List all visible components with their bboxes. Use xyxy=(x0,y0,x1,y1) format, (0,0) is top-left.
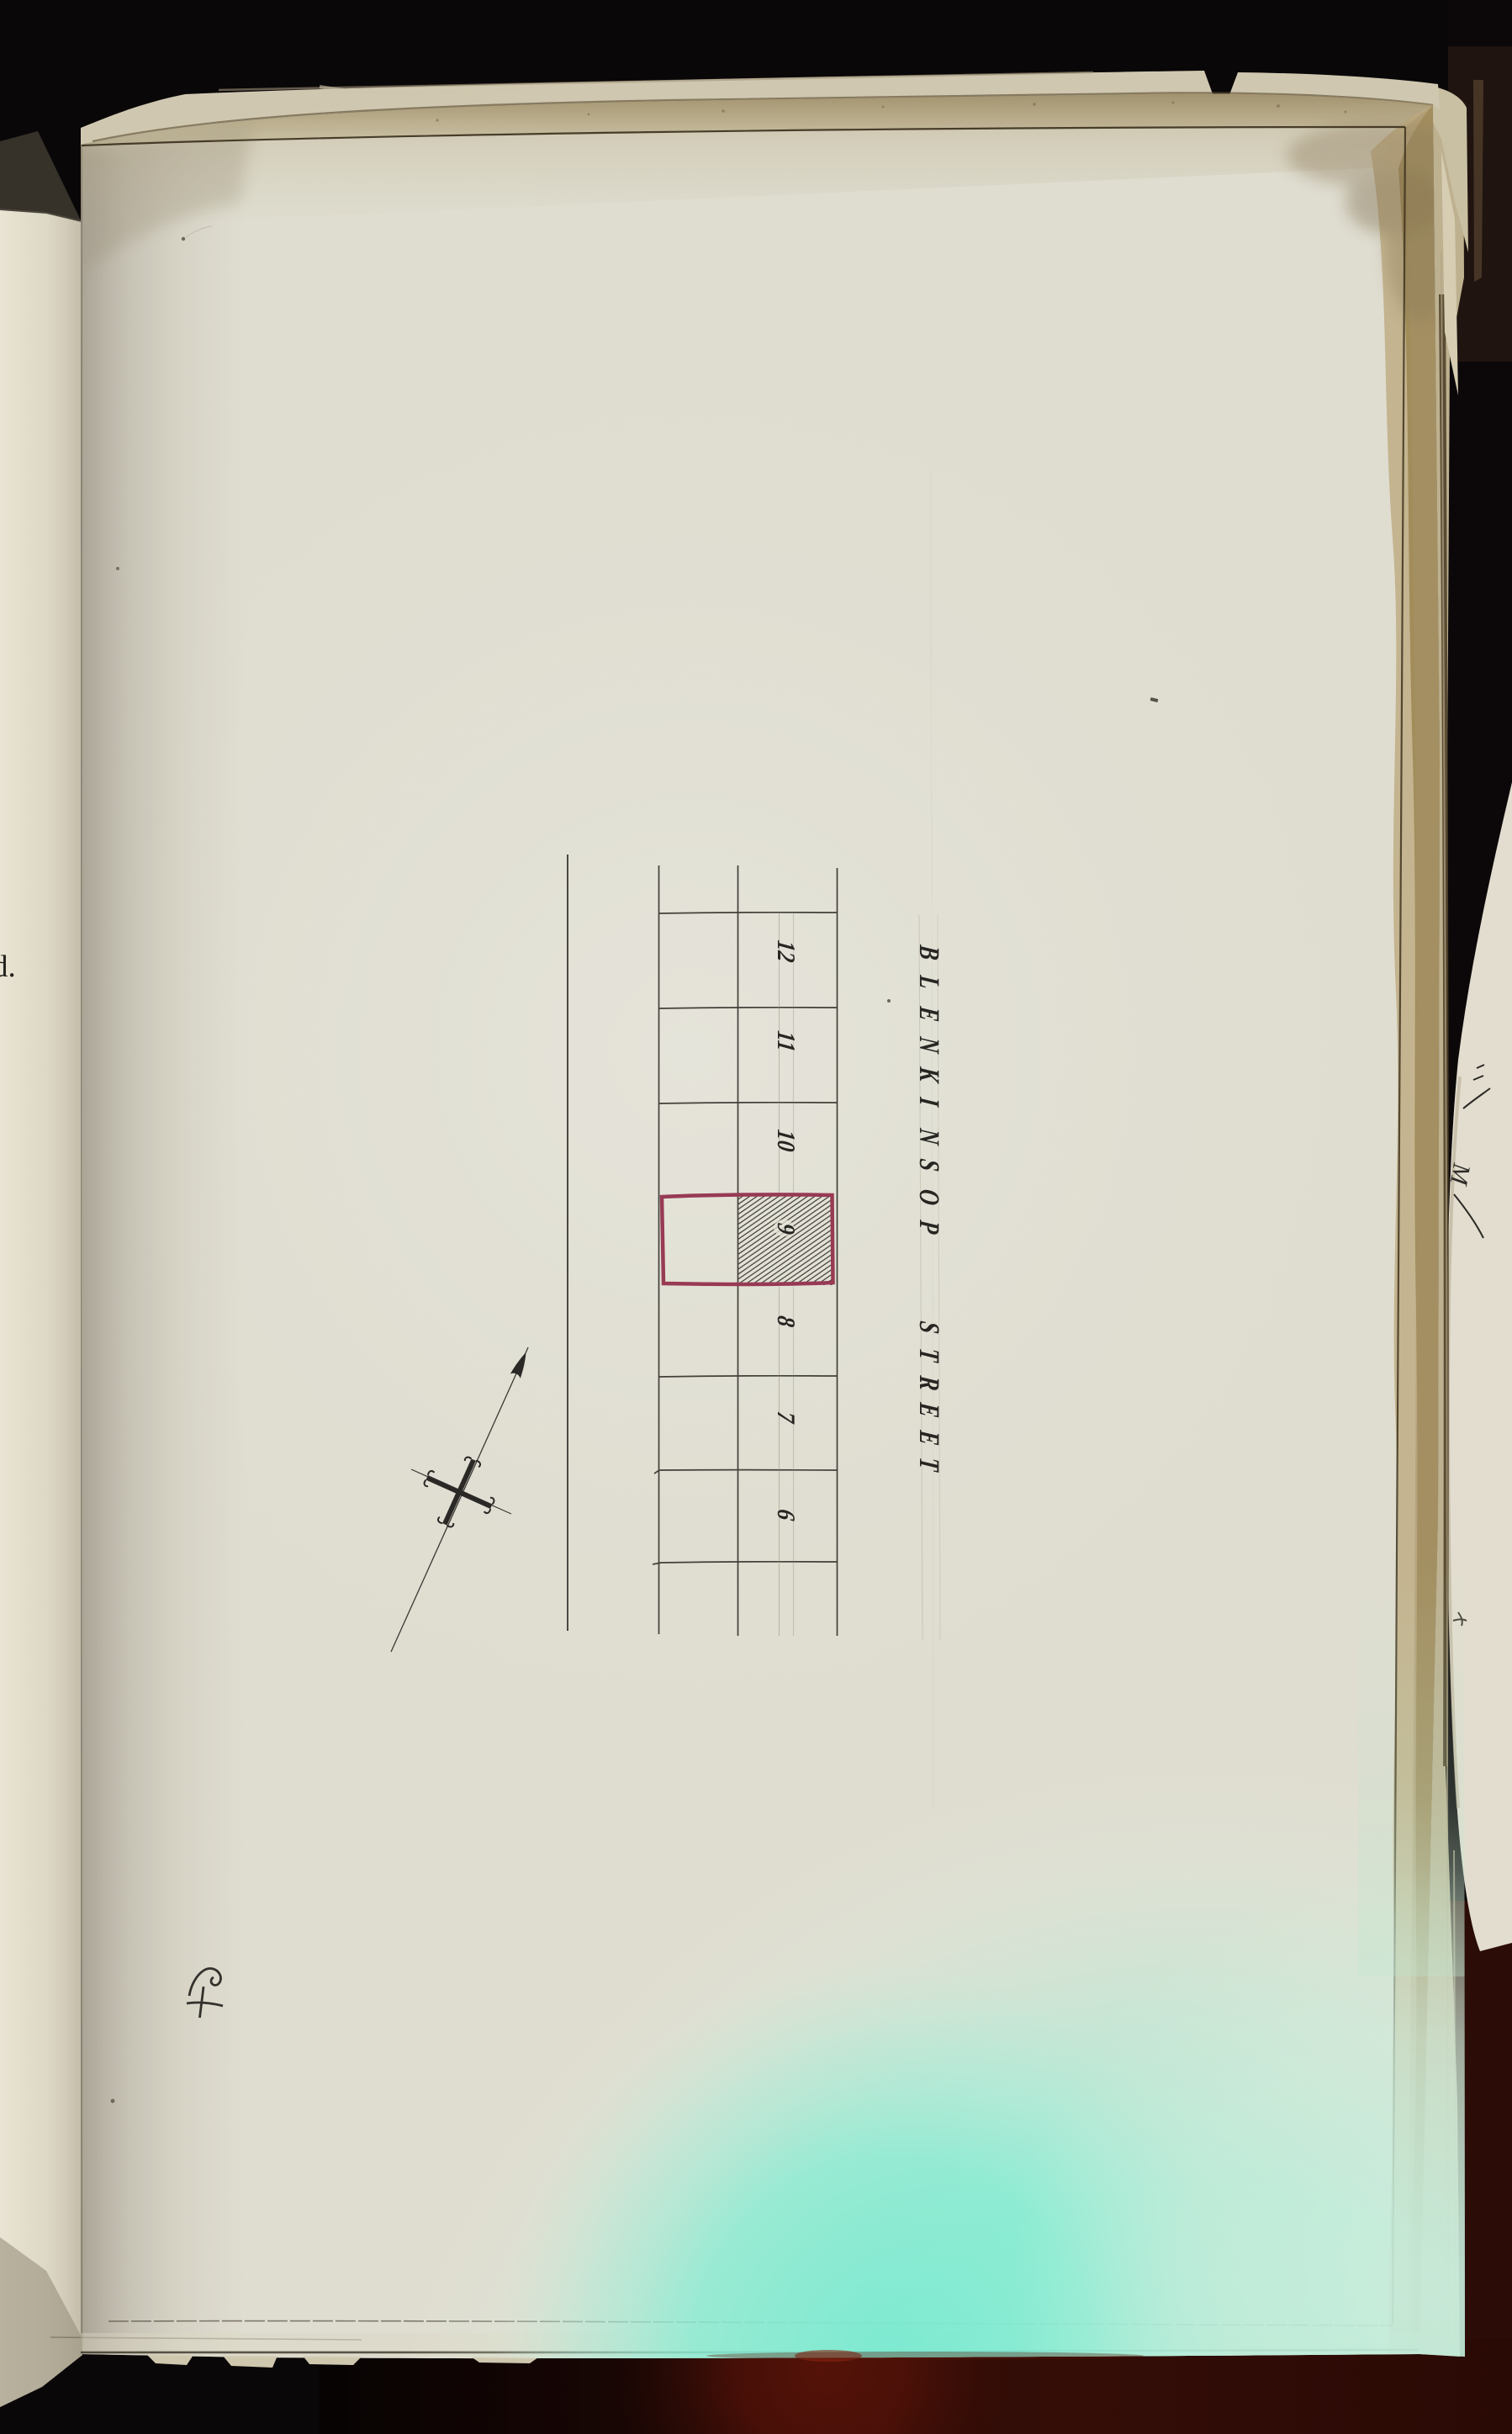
svg-text:d.: d. xyxy=(0,950,16,984)
